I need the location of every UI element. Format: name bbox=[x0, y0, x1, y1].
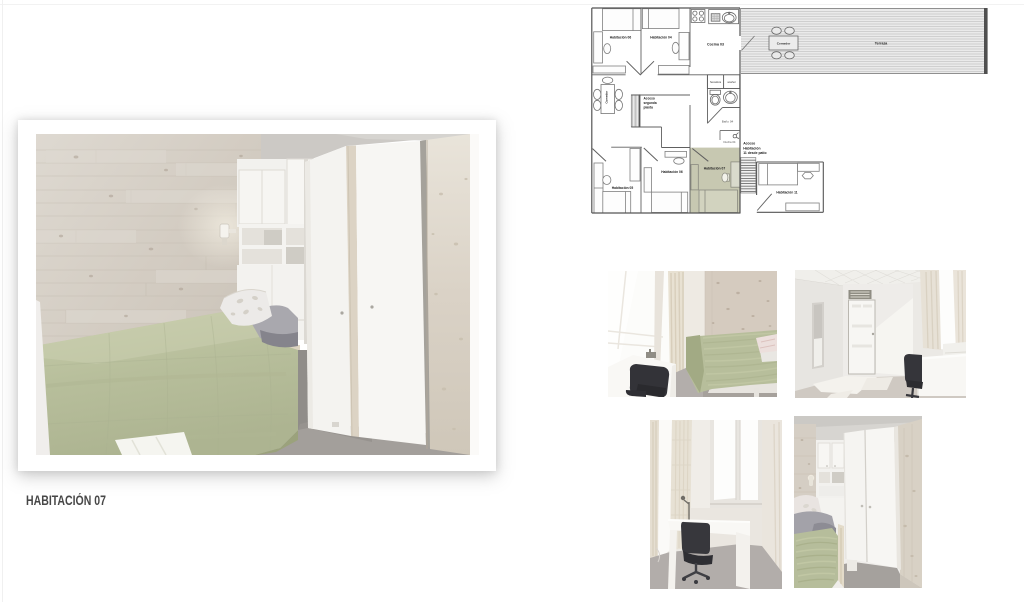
svg-text:Comedor: Comedor bbox=[777, 42, 791, 46]
svg-text:washer: washer bbox=[727, 80, 735, 84]
svg-text:11 desde patio: 11 desde patio bbox=[743, 151, 766, 155]
svg-text:Habitación 04: Habitación 04 bbox=[650, 35, 672, 39]
svg-text:Habitación 05: Habitación 05 bbox=[612, 186, 634, 190]
svg-text:Ducha 04: Ducha 04 bbox=[724, 140, 736, 144]
svg-text:Acceso: Acceso bbox=[743, 142, 755, 146]
svg-text:Habitación 11: Habitación 11 bbox=[776, 191, 797, 195]
svg-text:Cocina 03: Cocina 03 bbox=[707, 43, 724, 47]
svg-text:Habitación: Habitación bbox=[743, 146, 760, 150]
svg-text:planta: planta bbox=[644, 105, 654, 109]
svg-text:segunda: segunda bbox=[644, 101, 657, 105]
svg-text:Acceso: Acceso bbox=[644, 97, 655, 101]
svg-text:Baño 04: Baño 04 bbox=[722, 120, 734, 124]
svg-text:Comedor: Comedor bbox=[605, 90, 609, 104]
svg-text:Habitación 06: Habitación 06 bbox=[661, 170, 683, 174]
svg-text:Terraza: Terraza bbox=[875, 41, 889, 45]
svg-text:Habitación 06: Habitación 06 bbox=[610, 35, 632, 39]
svg-text:Habitación 07: Habitación 07 bbox=[704, 166, 726, 170]
svg-text:Secadora: Secadora bbox=[710, 80, 722, 84]
